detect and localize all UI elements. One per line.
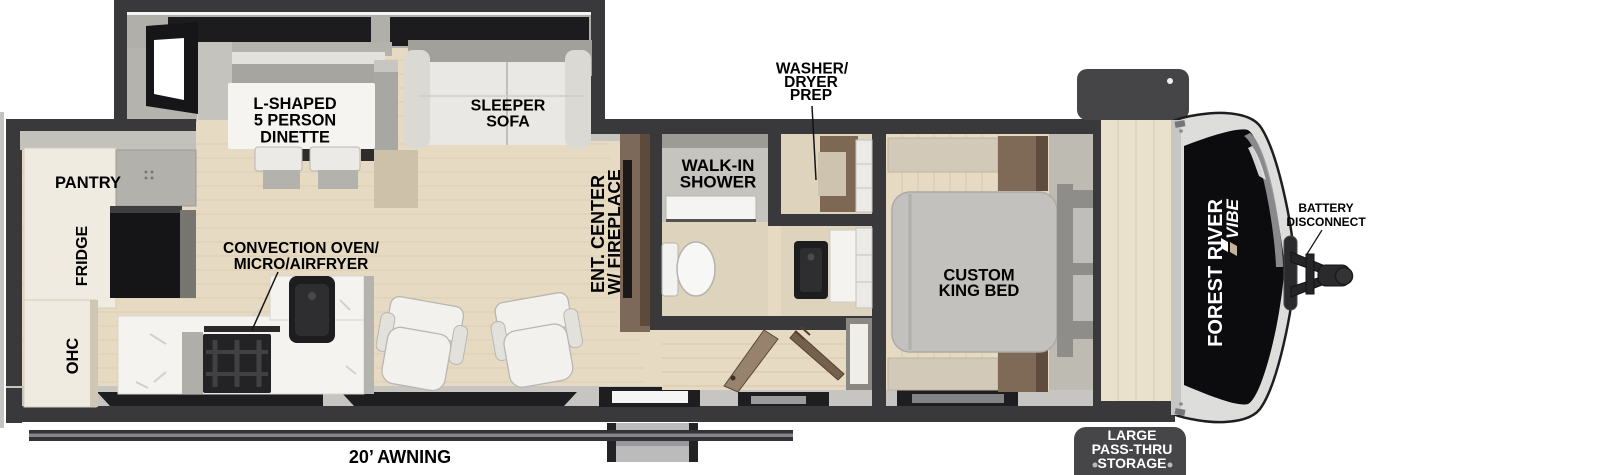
svg-text:KING BED: KING BED: [939, 282, 1020, 300]
svg-text:L-SHAPED: L-SHAPED: [253, 95, 336, 113]
svg-text:STORAGE: STORAGE: [1098, 455, 1167, 471]
svg-text:CONVECTION OVEN/: CONVECTION OVEN/: [223, 240, 380, 257]
svg-text:W/ FIREPLACE: W/ FIREPLACE: [604, 169, 624, 294]
svg-text:FRIDGE: FRIDGE: [74, 225, 91, 286]
svg-text:VIBE: VIBE: [1223, 199, 1242, 239]
svg-text:5 PERSON: 5 PERSON: [254, 112, 336, 130]
svg-text:PANTRY: PANTRY: [55, 174, 121, 192]
svg-text:OHC: OHC: [64, 338, 82, 375]
svg-text:SLEEPER: SLEEPER: [471, 98, 546, 115]
svg-text:PREP: PREP: [790, 87, 832, 104]
svg-text:SOFA: SOFA: [486, 114, 530, 131]
svg-text:BATTERY: BATTERY: [1298, 201, 1353, 215]
svg-text:DINETTE: DINETTE: [260, 129, 330, 147]
svg-text:MICRO/AIRFRYER: MICRO/AIRFRYER: [234, 256, 369, 273]
svg-text:20’ AWNING: 20’ AWNING: [349, 447, 451, 467]
svg-text:DISCONNECT: DISCONNECT: [1286, 215, 1366, 229]
svg-text:SHOWER: SHOWER: [680, 173, 757, 192]
